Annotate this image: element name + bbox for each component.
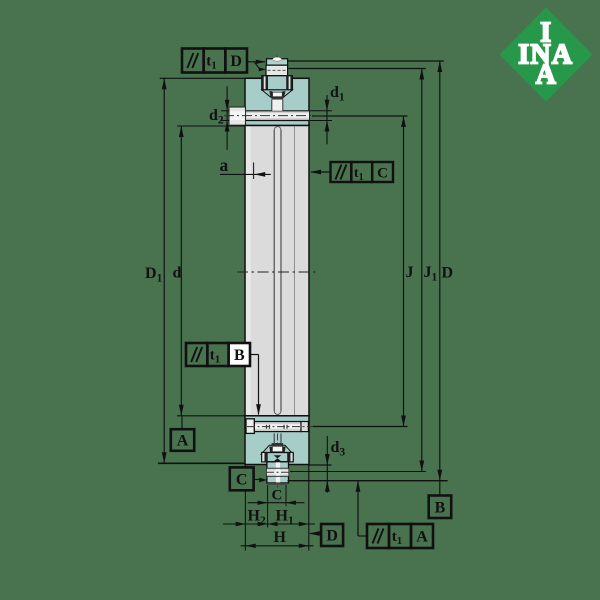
svg-text:J1: J1: [424, 264, 438, 284]
svg-text:C: C: [272, 488, 283, 504]
svg-text:D: D: [442, 265, 454, 282]
svg-text:d2: d2: [209, 107, 224, 127]
svg-text:H: H: [274, 529, 287, 546]
svg-text:D1: D1: [145, 265, 163, 285]
svg-text:D: D: [230, 53, 242, 70]
svg-text:t1: t1: [206, 54, 217, 72]
svg-text:d: d: [173, 265, 182, 282]
svg-text:A: A: [416, 529, 428, 546]
svg-text:H2: H2: [248, 508, 266, 528]
svg-text:D: D: [326, 528, 338, 545]
svg-text:H1: H1: [276, 508, 294, 528]
svg-text:a: a: [220, 155, 229, 175]
svg-text:C: C: [377, 166, 388, 182]
svg-text:d3: d3: [331, 439, 346, 459]
svg-text:B: B: [435, 499, 446, 516]
svg-text:t1: t1: [210, 348, 221, 366]
svg-text:B: B: [234, 347, 245, 364]
svg-text:A: A: [177, 433, 189, 450]
svg-text:t1: t1: [354, 166, 364, 183]
svg-text:d1: d1: [330, 84, 345, 104]
svg-text:C: C: [236, 471, 248, 488]
svg-text:A: A: [536, 60, 557, 91]
svg-text:t1: t1: [392, 529, 403, 547]
svg-text:J: J: [406, 264, 414, 281]
